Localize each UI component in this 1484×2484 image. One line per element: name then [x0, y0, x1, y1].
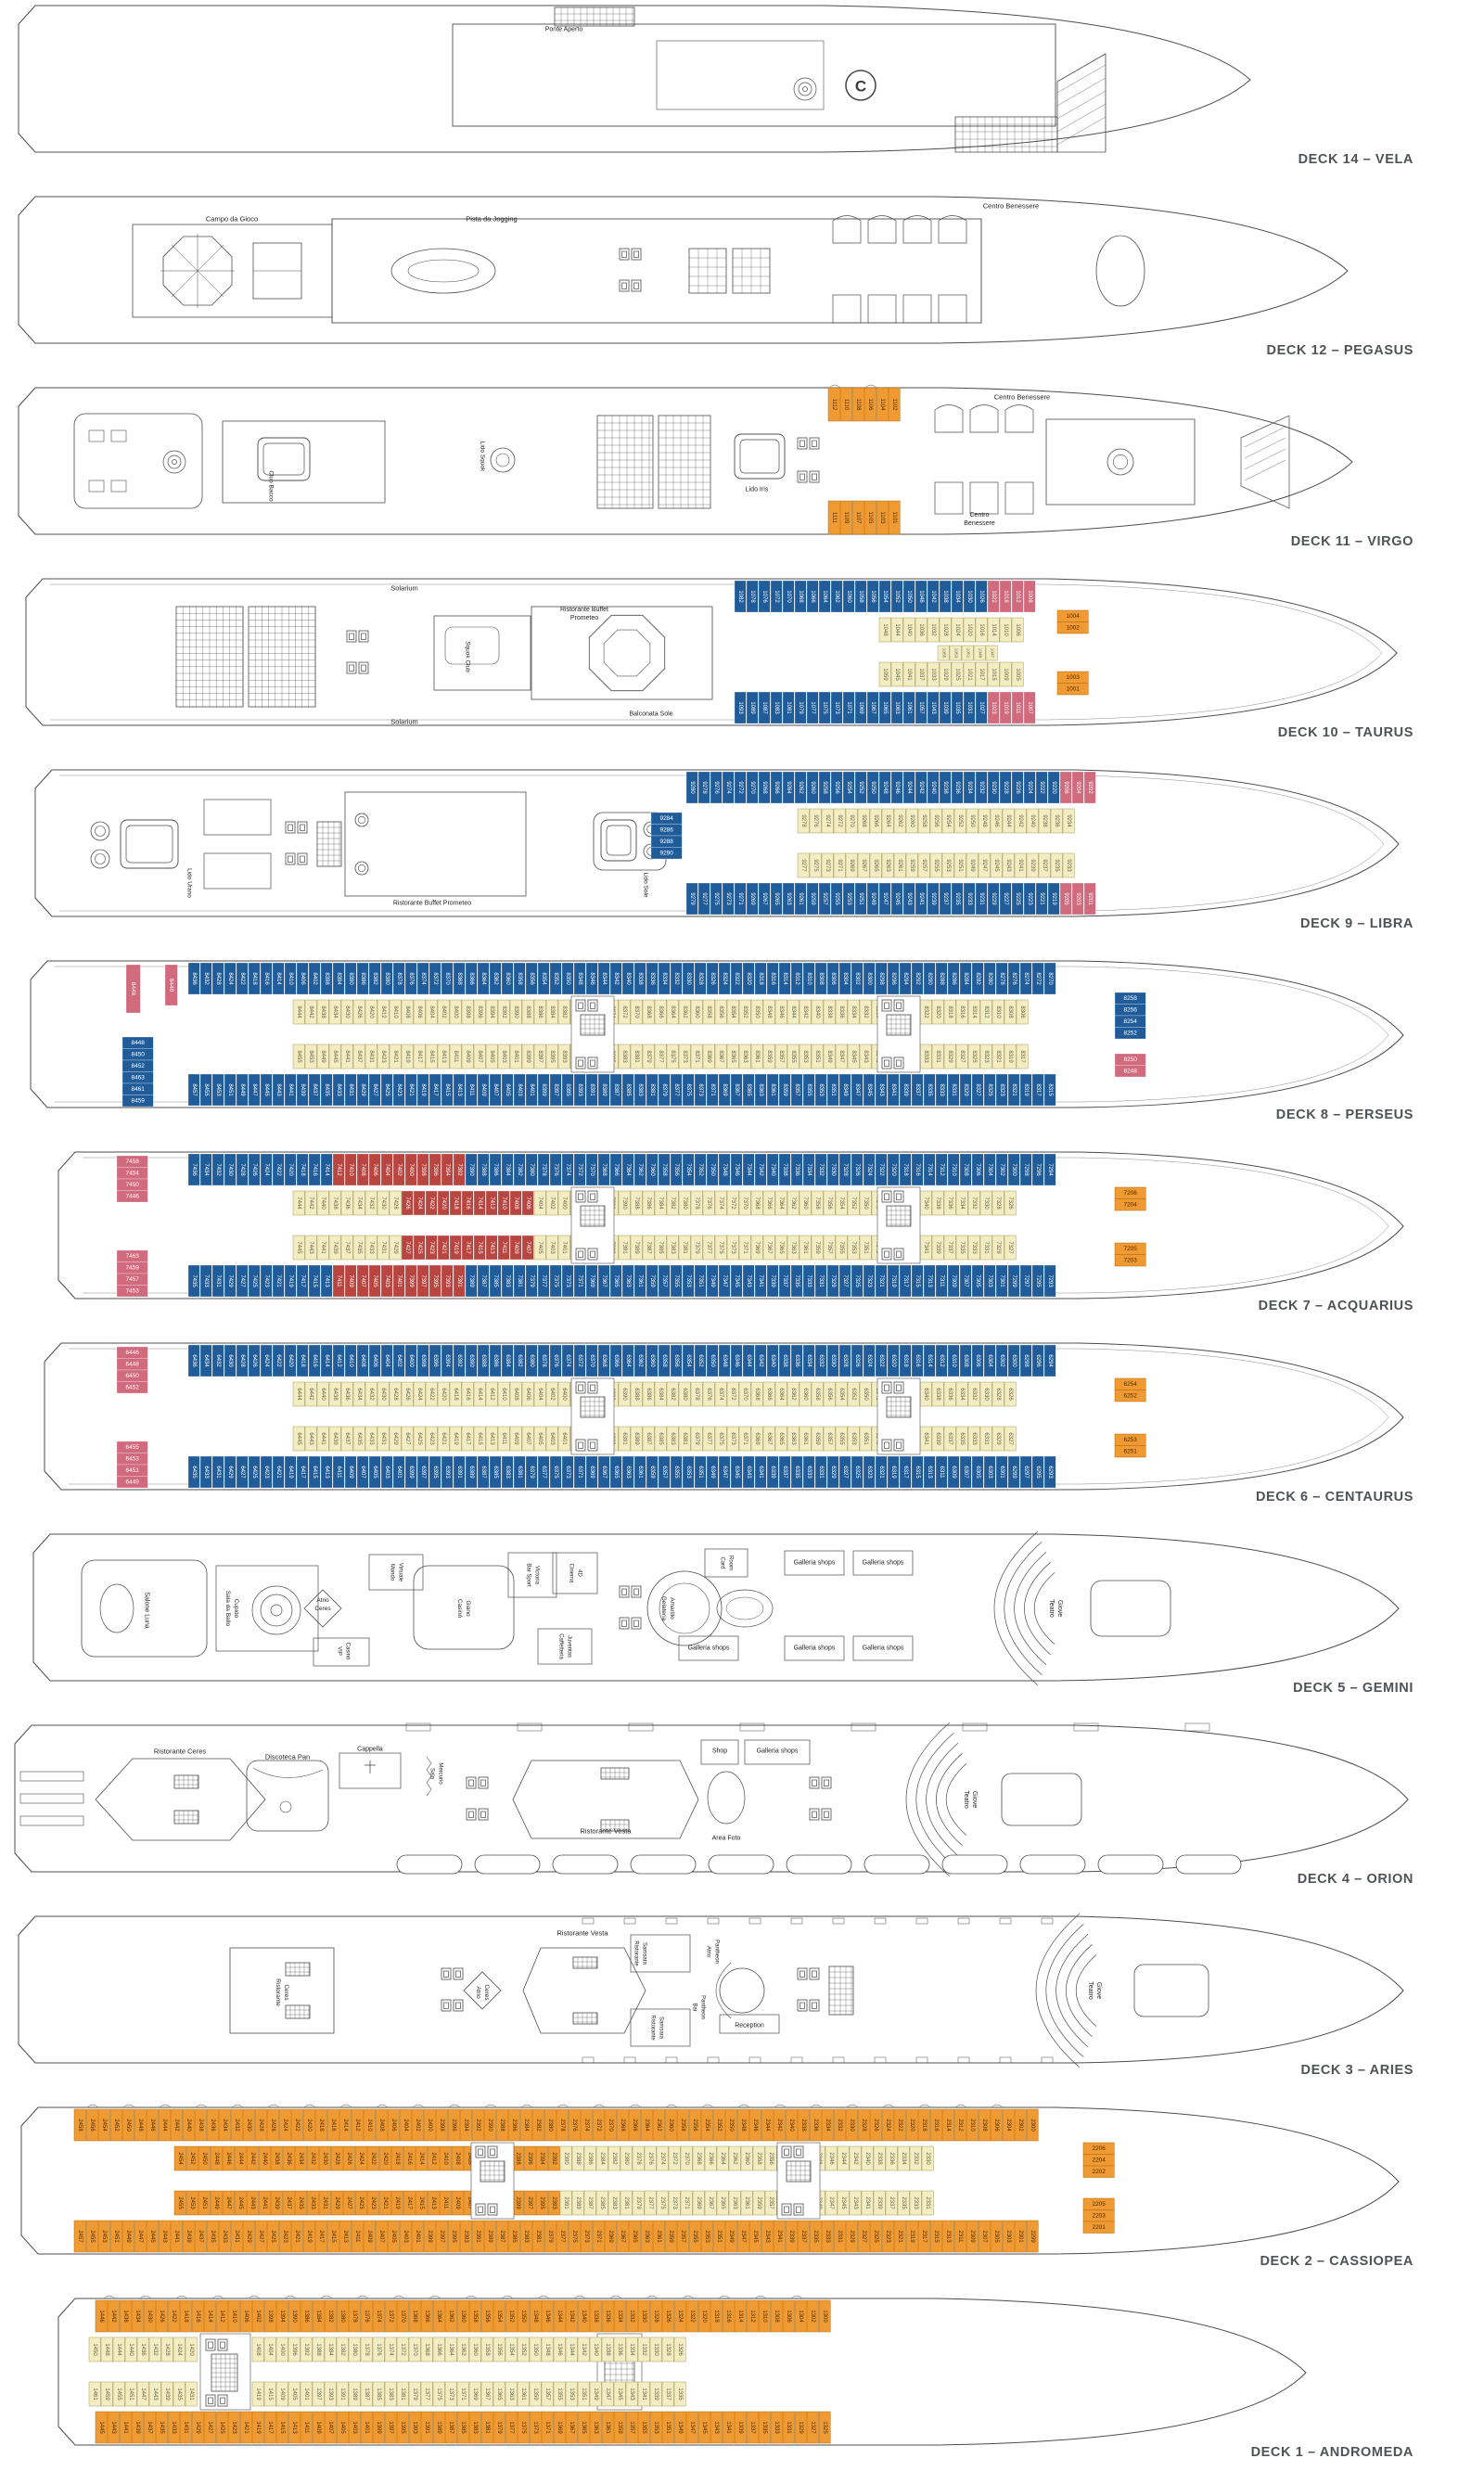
cabin-number: 1373: [448, 2388, 454, 2401]
cabin-number: 7410: [348, 1163, 353, 1176]
cabin-number: 2404: [403, 2119, 408, 2132]
cabin-number: 7374: [718, 1197, 723, 1210]
cabin-number: 6365: [778, 1432, 784, 1445]
cabin-number: 2413: [430, 2196, 436, 2209]
cabin-number: 1077: [810, 701, 815, 714]
cabin-number: 7433: [203, 1274, 209, 1287]
elevator-icon: [588, 1000, 597, 1011]
cabin-number: 1372: [400, 2343, 405, 2356]
cabin-number: 1036: [918, 623, 924, 636]
area-label: Discoteca Pan: [265, 1753, 310, 1761]
cabin-number: 8364: [480, 972, 486, 985]
cabin-number: 8346: [589, 972, 595, 985]
cabin-number: 8455: [296, 1050, 301, 1063]
cabin-number: 1398: [267, 2310, 273, 2323]
cabin-number: 7367: [766, 1241, 772, 1254]
cabin-number: 8331: [951, 1083, 956, 1096]
cabin-number: 2335: [901, 2196, 906, 2209]
elevator-icon: [588, 1248, 597, 1260]
cabin-number: 1385: [376, 2388, 381, 2401]
cabin-number: 2401: [415, 2230, 420, 2243]
cabin-number: 6371: [742, 1432, 748, 1445]
cabin-number: 6380: [682, 1388, 687, 1401]
cabin-number: 2370: [608, 2119, 613, 2132]
cabin-number: 7384: [658, 1197, 663, 1210]
elevator-icon: [882, 1057, 891, 1069]
cabin-number: 7401: [396, 1274, 402, 1287]
cabin-number: 8350: [565, 972, 570, 985]
area-label: Squok Club: [465, 641, 471, 672]
cabin-number: 9248: [882, 781, 888, 794]
cabin-number: 1042: [930, 590, 936, 603]
cabin-number: 1024: [954, 623, 960, 636]
cabin-number: 6385: [493, 1466, 498, 1479]
cabin-number: 2396: [451, 2119, 456, 2132]
cabin-number: 1360: [472, 2343, 478, 2356]
cabin-number: 9267: [761, 892, 767, 905]
cabin-number: 2432: [234, 2119, 239, 2132]
elevator-icon: [632, 249, 641, 260]
cabin-number: 2451: [201, 2196, 207, 2209]
area-label: Solarium: [390, 718, 418, 726]
cabin-number: 7357: [826, 1241, 832, 1254]
cabin-number: 8296: [890, 972, 896, 985]
elevator-icon: [620, 1586, 629, 1597]
cabin-number: 8415: [444, 1083, 450, 1096]
cabin-number: 6424: [263, 1354, 269, 1367]
cabin-number: 6368: [754, 1388, 760, 1401]
cabin-number: 1338: [605, 2343, 610, 2356]
cabin-number: 6429: [392, 1432, 398, 1445]
cabin-number: 6390: [468, 1354, 474, 1367]
cabin-number: 8359: [782, 1083, 787, 1096]
cabin-number: 2363: [644, 2230, 649, 2243]
cabin-number: 1338: [593, 2310, 598, 2323]
cabin-number: 1002: [1066, 624, 1080, 631]
cabin-number: 6429: [227, 1466, 233, 1479]
cabin-number: 2420: [382, 2152, 388, 2165]
hot-tub-icon: [355, 813, 368, 826]
area-label: Gelateria: [660, 1596, 667, 1621]
cabin-number: 1332: [629, 2310, 634, 2323]
cabin-number: 2366: [632, 2119, 637, 2132]
cabin-number: 6323: [866, 1466, 872, 1479]
cabin-number: 7428: [239, 1163, 245, 1176]
cabin-number: 6383: [505, 1466, 510, 1479]
cabin-number: 1427: [207, 2421, 212, 2434]
elevator-icon: [218, 2339, 227, 2350]
cabin-number: 6406: [525, 1388, 531, 1401]
cabin-number: 7337: [782, 1274, 787, 1287]
cabin-number: 8353: [818, 1083, 824, 1096]
cabin-number: 7437: [344, 1241, 350, 1254]
cabin-number: 8397: [537, 1050, 543, 1063]
cabin-number: 6328: [842, 1354, 848, 1367]
cabin-number: 2411: [354, 2231, 360, 2244]
cabin-number: 2440: [262, 2152, 267, 2165]
cabin-number: 6423: [263, 1466, 269, 1479]
cabin-number: 7333: [971, 1241, 977, 1254]
cabin-number: 6446: [125, 1350, 139, 1356]
cabin-number: 8412: [380, 1005, 386, 1018]
cabin-number: 9271: [837, 859, 842, 872]
cabin-number: 1028: [942, 623, 948, 636]
cabin-number: 1407: [327, 2421, 333, 2434]
cabin-number: 6324: [866, 1354, 872, 1367]
cabin-number: 9244: [1005, 814, 1011, 827]
cabin-number: 8344: [790, 1005, 796, 1018]
cabin-number: 1363: [593, 2421, 598, 2434]
cabin-number: 2333: [913, 2196, 918, 2209]
cabin-number: 8434: [332, 1005, 338, 1018]
cabin-number: 1349: [593, 2388, 598, 2401]
cabin-number: 6351: [697, 1466, 703, 1479]
cabin-number: 7313: [927, 1274, 932, 1287]
cabin-number: 2410: [442, 2152, 448, 2165]
cabin-number: 7439: [332, 1241, 338, 1254]
cabin-number: 2363: [732, 2196, 737, 2209]
cabin-number: 6332: [971, 1388, 977, 1401]
cabin-number: 6342: [758, 1354, 763, 1367]
cabin-number: 1381: [484, 2421, 490, 2434]
cabin-number: 1071: [846, 701, 851, 714]
cabin-number: 7321: [878, 1274, 884, 1287]
cabin-number: 6302: [999, 1354, 1004, 1367]
cabin-number: 9256: [933, 814, 939, 827]
cabin-number: 2336: [812, 2119, 818, 2132]
cabin-number: 9219: [1051, 892, 1056, 905]
cabin-number: 2444: [237, 2152, 243, 2165]
cabin-number: 8364: [670, 1005, 675, 1018]
cabin-number: 8385: [625, 1083, 631, 1096]
cabin-number: 1364: [448, 2343, 454, 2356]
area-label: Ristorante Buffet Prometeo: [393, 901, 471, 907]
cabin-number: 6361: [802, 1432, 808, 1445]
cabin-number: 8357: [794, 1083, 800, 1096]
cabin-number: 9266: [873, 814, 878, 827]
cabin-number: 2362: [732, 2152, 737, 2165]
cabin-number: 8348: [766, 1005, 772, 1018]
elevator-icon: [894, 1382, 903, 1393]
cabin-number: 1396: [291, 2343, 297, 2356]
cabin-number: 8346: [778, 1005, 784, 1018]
cabin-number: 1032: [930, 623, 936, 636]
cabin-number: 1359: [532, 2388, 538, 2401]
cabin-number: 7443: [308, 1241, 313, 1254]
cabin-number: 2409: [366, 2230, 372, 2243]
cabin-number: 6411: [336, 1466, 341, 1479]
cabin-number: 8399: [525, 1050, 531, 1063]
cabin-number: 2410: [366, 2119, 372, 2132]
cabin-number: 2416: [330, 2119, 336, 2132]
elevator-icon: [286, 822, 295, 833]
cabin-number: 7353: [685, 1274, 691, 1287]
cabin-number: 2364: [720, 2152, 725, 2165]
cabin-number: 8372: [432, 972, 438, 985]
cabin-number: 2423: [282, 2230, 288, 2243]
cabin-number: 2446: [225, 2152, 231, 2165]
cabin-number: 2379: [635, 2196, 641, 2209]
cabin-number: 1051: [966, 648, 971, 659]
cabin-number: 8367: [734, 1083, 739, 1096]
cabin-number: 9249: [870, 892, 876, 905]
cabin-number: 2358: [756, 2152, 761, 2165]
cabin-number: 7335: [959, 1241, 965, 1254]
cabin-number: 8394: [336, 972, 341, 985]
cabin-number: 1415: [267, 2388, 273, 2401]
elevator-icon: [620, 249, 629, 260]
cabin-number: 8318: [758, 972, 763, 985]
cabin-number: 8363: [758, 1083, 763, 1096]
cabin-number: 2454: [101, 2119, 107, 2132]
cabin-number: 1374: [388, 2343, 393, 2356]
cabin-number: 2453: [101, 2230, 107, 2243]
cabin-number: 1107: [855, 512, 861, 525]
cabin-number: 6337: [947, 1432, 953, 1445]
cabin-number: 6433: [203, 1466, 209, 1479]
cabin-number: 1342: [581, 2343, 586, 2356]
cabin-number: 6299: [1011, 1466, 1017, 1479]
cabin-number: 1018: [1003, 590, 1008, 603]
cabin-number: 8316: [770, 972, 775, 985]
cabin-number: 6303: [987, 1466, 992, 1479]
cabin-number: 6417: [300, 1466, 305, 1479]
cabin-number: 2399: [515, 2196, 520, 2209]
cabin-number: 1033: [930, 668, 936, 681]
cabin-number: 6382: [517, 1354, 522, 1367]
cabin-number: 1078: [749, 590, 755, 603]
area-label: Lido Urano: [186, 868, 193, 898]
cabin-number: 6425: [251, 1466, 257, 1479]
cabin-number: 8278: [999, 972, 1004, 985]
cabin-number: 1110: [843, 399, 849, 411]
cabin-number: 7423: [429, 1241, 434, 1254]
cabin-number: 1435: [159, 2421, 164, 2434]
cabin-number: 7427: [404, 1241, 410, 1254]
cabin-number: 1392: [303, 2343, 309, 2356]
cabin-number: 7304: [987, 1163, 992, 1176]
cabin-number: 1406: [243, 2310, 249, 2323]
cabin-number: 6311: [939, 1466, 944, 1479]
cabin-number: 8345: [866, 1083, 872, 1096]
cabin-number: 1416: [195, 2310, 200, 2323]
cabin-number: 2365: [720, 2196, 725, 2209]
deck-label: DECK 8 – PERSEUS: [1276, 1108, 1414, 1122]
area-label: Atrio: [706, 1946, 711, 1958]
cabin-number: 2318: [921, 2119, 927, 2132]
cabin-number: 6352: [697, 1354, 703, 1367]
area-label: Cupido: [233, 1599, 239, 1619]
cabin-number: 2447: [137, 2230, 143, 2243]
cabin-number: 8431: [368, 1050, 374, 1063]
cabin-number: 2307: [981, 2230, 987, 2243]
cabin-number: 1328: [665, 2343, 671, 2356]
hot-tub-icon: [355, 862, 368, 875]
cabin-number: 7389: [468, 1274, 474, 1287]
cabin-number: 7427: [239, 1274, 245, 1287]
cabin-number: 2384: [599, 2152, 605, 2165]
cabin-number: 6395: [432, 1466, 438, 1479]
cabin-number: 6359: [814, 1432, 820, 1445]
cabin-number: 1335: [761, 2421, 767, 2434]
cabin-number: 6366: [613, 1354, 619, 1367]
cabin-number: 7366: [766, 1197, 772, 1210]
cabin-number: 8363: [742, 1050, 748, 1063]
cabin-number: 9262: [897, 814, 902, 827]
cabin-number: 8376: [408, 972, 414, 985]
cabin-number: 2375: [659, 2196, 665, 2209]
area-label: Lido Sole: [643, 872, 649, 897]
cabin-number: 2331: [837, 2230, 842, 2243]
cabin-number: 1336: [617, 2343, 622, 2356]
cabin-number: 8439: [300, 1083, 305, 1096]
cabin-number: 1358: [472, 2310, 478, 2323]
cabin-number: 2386: [587, 2152, 593, 2165]
cabin-number: 6387: [646, 1432, 651, 1445]
cabin-number: 9230: [991, 781, 996, 794]
deck-label: DECK 2 – CASSIOPEA: [1260, 2254, 1414, 2269]
cabin-number: 7407: [525, 1241, 531, 1254]
elevator-icon: [476, 2204, 485, 2215]
area-label: Ceres: [283, 1984, 289, 2001]
cabin-number: 2304: [1005, 2119, 1011, 2132]
cabin-number: 7383: [505, 1274, 510, 1287]
cabin-number: 2451: [113, 2230, 119, 2243]
cabin-number: 8413: [456, 1083, 462, 1096]
cabin-number: 6399: [408, 1466, 414, 1479]
cabin-number: 1359: [617, 2421, 622, 2434]
cabin-number: 6381: [517, 1466, 522, 1479]
cabin-number: 7429: [227, 1274, 233, 1287]
cabin-number: 9278: [800, 814, 806, 827]
cabin-number: 2380: [623, 2152, 629, 2165]
cabin-number: 2437: [286, 2196, 291, 2209]
cabin-number: 1318: [713, 2310, 719, 2323]
cabin-number: 8319: [1023, 1083, 1029, 1096]
superstructure: [453, 24, 1055, 126]
cabin-number: 2372: [595, 2119, 601, 2132]
cabin-number: 9228: [1003, 781, 1008, 794]
cabin-number: 9272: [837, 814, 842, 827]
cabin-number: 1403: [352, 2421, 357, 2434]
cabin-number: 9250: [870, 781, 876, 794]
deck-4-drawing: Ristorante CeresDiscoteca PanCappellaSal…: [7, 1720, 1426, 1879]
cabin-number: 2369: [608, 2230, 613, 2243]
cabin-number: 2343: [852, 2196, 858, 2209]
cabin-number: 9204: [1075, 781, 1081, 794]
cabin-number: 7351: [697, 1274, 703, 1287]
cabin-number: 6401: [396, 1466, 402, 1479]
cabin-number: 1330: [641, 2310, 646, 2323]
cabin-number: 2327: [861, 2230, 866, 2243]
cabin-number: 7347: [722, 1274, 727, 1287]
pool-icon: [601, 820, 636, 861]
cabin-number: 8403: [517, 1083, 522, 1096]
cabin-number: 7412: [336, 1163, 341, 1176]
cabin-number: 1377: [424, 2388, 429, 2401]
cabin-number: 2372: [672, 2152, 677, 2165]
cabin-number: 8312: [794, 972, 800, 985]
cabin-number: 9267: [861, 859, 866, 872]
area-label: Solarium: [390, 584, 418, 593]
cabin-number: 8368: [646, 1005, 651, 1018]
lifeboat: [709, 1855, 774, 1874]
cabin-number: 6387: [480, 1466, 486, 1479]
cabin-number: 1344: [569, 2343, 574, 2356]
cabin-number: 1343: [629, 2388, 634, 2401]
cabin-number: 1009: [1003, 668, 1008, 681]
cabin-number: 6347: [722, 1466, 727, 1479]
cabin-number: 7400: [408, 1163, 414, 1176]
cabin-number: 2334: [901, 2152, 906, 2165]
cabin-number: 7362: [637, 1163, 643, 1176]
cabin-number: 8308: [1007, 1005, 1013, 1018]
cabin-number: 8415: [429, 1050, 434, 1063]
cabin-number: 1039: [942, 701, 948, 714]
elevator-icon: [576, 1382, 585, 1393]
cabin-number: 2364: [644, 2119, 649, 2132]
cabin-number: 2322: [897, 2119, 902, 2132]
cabin-number: 7371: [742, 1241, 748, 1254]
cabin-number: 7335: [794, 1274, 800, 1287]
cabin-number: 2412: [354, 2119, 360, 2132]
cabin-number: 2394: [463, 2119, 468, 2132]
cabin-number: 2202: [1092, 2169, 1106, 2175]
pool-icon: [121, 820, 178, 868]
cabin-number: 2378: [559, 2119, 565, 2132]
cabin-number: 1026: [979, 590, 984, 603]
cabin-number: 6353: [685, 1466, 691, 1479]
cabin-number: 2316: [933, 2119, 939, 2132]
cabin-number: 2313: [945, 2230, 951, 2243]
cabin-number: 1394: [279, 2310, 285, 2323]
cabin-number: 6370: [742, 1388, 748, 1401]
deck-plan-deck-4: Ristorante CeresDiscoteca PanCappellaSal…: [7, 1720, 1484, 1911]
cabin-number: 1034: [954, 590, 960, 603]
cabin-number: 8366: [658, 1005, 663, 1018]
cabin-number: 1325: [822, 2421, 827, 2434]
cabin-number: 8414: [275, 972, 281, 985]
cabin-number: 1383: [388, 2388, 393, 2401]
elevator-icon: [588, 1440, 597, 1451]
cabin-number: 7421: [441, 1241, 446, 1254]
cabin-number: 9242: [1017, 814, 1023, 827]
cabin-number: 6307: [963, 1466, 968, 1479]
cabin-number: 9240: [1030, 814, 1035, 827]
cabin-number: 2444: [161, 2119, 167, 2132]
cabin-number: 6329: [995, 1432, 1001, 1445]
cabin-number: 2445: [237, 2196, 243, 2209]
cabin-number: 8386: [537, 1005, 543, 1018]
cabin-number: 6346: [734, 1354, 739, 1367]
area-label: Lido Squok: [480, 442, 486, 472]
cabin-number: 2310: [969, 2119, 975, 2132]
cabin-number: 1365: [496, 2388, 502, 2401]
cabin-number: 1339: [737, 2421, 743, 2434]
cabin-number: 6309: [951, 1466, 956, 1479]
cabin-number: 2354: [704, 2119, 710, 2132]
cabin-number: 2442: [173, 2119, 179, 2132]
cabin-number: 1061: [906, 701, 912, 714]
cabin-number: 8437: [312, 1083, 317, 1096]
cabin-number: 1022: [991, 590, 996, 603]
cabin-number: 9275: [812, 859, 818, 872]
cabin-number: 6436: [344, 1388, 350, 1401]
cabin-number: 6338: [782, 1354, 787, 1367]
cabin-number: 7356: [826, 1197, 832, 1210]
cabin-number: 6421: [275, 1466, 281, 1479]
cabin-number: 1362: [448, 2310, 454, 2323]
